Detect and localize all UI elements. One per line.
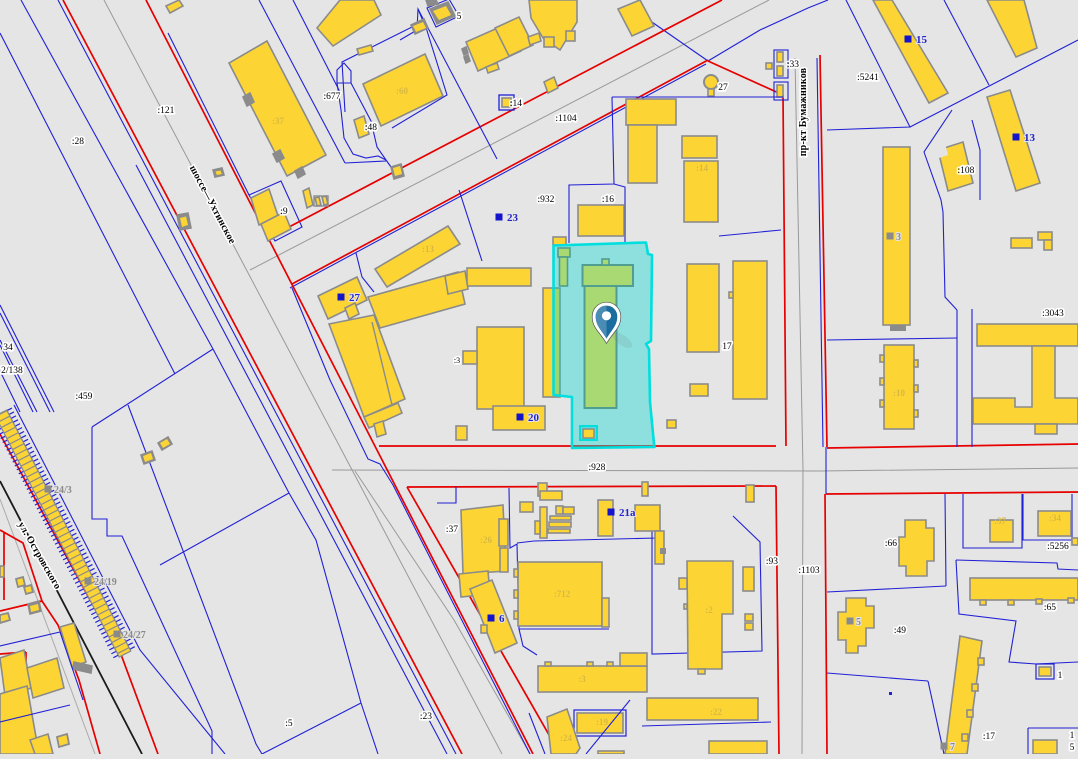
svg-text:3: 3	[896, 232, 901, 243]
svg-text::23: :23	[420, 712, 432, 722]
svg-text::48: :48	[365, 123, 377, 133]
svg-text::65: :65	[1044, 603, 1056, 613]
svg-text::677: :677	[324, 92, 341, 102]
svg-text:24/3: 24/3	[54, 485, 72, 496]
svg-text::3043: :3043	[1042, 309, 1064, 319]
svg-text::13: :13	[422, 244, 434, 254]
svg-text::93: :93	[766, 557, 778, 567]
svg-text::49: :49	[894, 626, 906, 636]
svg-text::9: :9	[280, 207, 288, 217]
svg-text::26: :26	[480, 535, 492, 545]
svg-text:13: 13	[1024, 132, 1036, 144]
svg-text:2/138: 2/138	[1, 366, 23, 376]
svg-text::5241: :5241	[857, 73, 879, 83]
svg-text::19: :19	[596, 717, 608, 727]
svg-text:27: 27	[349, 292, 361, 304]
svg-text:5: 5	[457, 12, 462, 22]
svg-text::37: :37	[446, 525, 458, 535]
svg-text:20: 20	[528, 412, 540, 424]
svg-text::22: :22	[710, 707, 722, 717]
svg-text:23: 23	[507, 212, 519, 224]
svg-text:15: 15	[916, 34, 928, 46]
svg-text::14: :14	[696, 163, 708, 173]
svg-text::3: :3	[578, 674, 586, 684]
svg-text::3: :3	[454, 356, 460, 365]
svg-text::14: :14	[510, 99, 522, 109]
svg-text::24: :24	[560, 733, 572, 743]
svg-text:21a: 21a	[619, 507, 636, 519]
svg-text::2: :2	[705, 605, 713, 615]
svg-text::108: :108	[958, 166, 975, 176]
svg-text:пр-кт Бумажников: пр-кт Бумажников	[798, 67, 809, 156]
svg-text:1: 1	[1058, 671, 1063, 681]
svg-text::66: :66	[885, 539, 897, 549]
svg-text::5256: :5256	[1047, 542, 1069, 552]
svg-text:17: 17	[722, 342, 732, 352]
svg-text:24/27: 24/27	[123, 630, 146, 641]
svg-text::459: :459	[76, 392, 93, 402]
svg-text::932: :932	[538, 195, 555, 205]
svg-text:24/19: 24/19	[94, 577, 117, 588]
svg-text:34: 34	[3, 343, 13, 353]
svg-text:6: 6	[499, 613, 505, 625]
svg-text::712: :712	[554, 589, 571, 599]
svg-text::5: :5	[285, 719, 293, 729]
svg-text:5: 5	[856, 617, 861, 628]
svg-text::60: :60	[396, 86, 408, 96]
svg-text::928: :928	[589, 463, 606, 473]
svg-text::37: :37	[272, 116, 284, 126]
svg-text:27: 27	[718, 83, 728, 93]
svg-text::17: :17	[983, 732, 995, 742]
svg-text::121: :121	[158, 106, 175, 116]
svg-text::16: :16	[602, 195, 614, 205]
svg-text::1104: :1104	[555, 114, 577, 124]
svg-text::28: :28	[72, 137, 84, 147]
svg-text::34: :34	[1049, 513, 1061, 523]
svg-text:1: 1	[1070, 731, 1075, 741]
svg-text:7: 7	[950, 742, 955, 753]
svg-text::37: :37	[994, 516, 1006, 526]
svg-text::1103: :1103	[798, 566, 820, 576]
svg-text:5: 5	[1070, 743, 1075, 753]
svg-text::10: :10	[893, 388, 905, 398]
